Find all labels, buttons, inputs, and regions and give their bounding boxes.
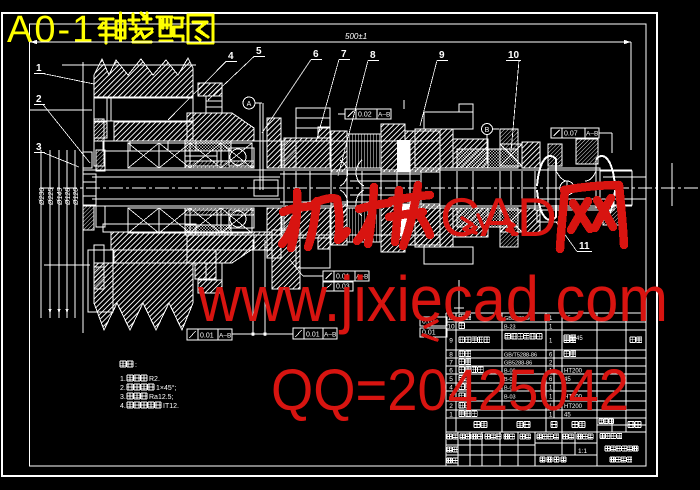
svg-text:9: 9 bbox=[439, 50, 445, 61]
svg-text:1:1: 1:1 bbox=[578, 448, 587, 455]
svg-text:11: 11 bbox=[579, 241, 590, 252]
svg-text:8: 8 bbox=[370, 50, 376, 61]
svg-text:500±1: 500±1 bbox=[345, 32, 367, 41]
svg-text:0.02: 0.02 bbox=[358, 112, 372, 119]
svg-text:3.: 3. bbox=[120, 394, 126, 401]
svg-text:Ø120: Ø120 bbox=[73, 188, 80, 206]
svg-text:2: 2 bbox=[36, 94, 42, 105]
svg-text:9: 9 bbox=[449, 338, 453, 345]
svg-text:R2.: R2. bbox=[149, 376, 160, 383]
svg-text:5: 5 bbox=[256, 46, 262, 57]
svg-text:1: 1 bbox=[36, 63, 42, 74]
svg-text:Ø236: Ø236 bbox=[39, 188, 46, 206]
svg-text:CAD: CAD bbox=[440, 186, 557, 248]
svg-text::: : bbox=[135, 362, 137, 369]
svg-text:4.: 4. bbox=[120, 403, 126, 410]
svg-text:Ra12.5;: Ra12.5; bbox=[149, 394, 174, 401]
svg-text:A0-1: A0-1 bbox=[7, 9, 95, 51]
svg-text:A–B: A–B bbox=[378, 112, 390, 119]
svg-text:Ø128: Ø128 bbox=[65, 188, 72, 206]
svg-text:0.07: 0.07 bbox=[564, 131, 578, 138]
svg-text:A: A bbox=[247, 101, 252, 108]
svg-text:4: 4 bbox=[228, 51, 234, 62]
svg-text:Ø225: Ø225 bbox=[48, 188, 55, 206]
svg-text:IT12.: IT12. bbox=[163, 403, 179, 410]
svg-text:7: 7 bbox=[341, 49, 347, 60]
svg-text:B: B bbox=[485, 127, 490, 134]
svg-text:2.: 2. bbox=[120, 385, 126, 392]
svg-text:3: 3 bbox=[36, 142, 42, 153]
svg-text:QQ=20425042: QQ=20425042 bbox=[271, 358, 629, 423]
svg-text:1.: 1. bbox=[120, 376, 126, 383]
svg-text:10: 10 bbox=[508, 50, 520, 61]
svg-text:1×45°;: 1×45°; bbox=[156, 384, 177, 392]
svg-text:A–B: A–B bbox=[586, 131, 598, 138]
svg-text:Ø143: Ø143 bbox=[57, 188, 64, 206]
svg-text:6: 6 bbox=[313, 49, 319, 60]
svg-text:45: 45 bbox=[576, 336, 583, 342]
